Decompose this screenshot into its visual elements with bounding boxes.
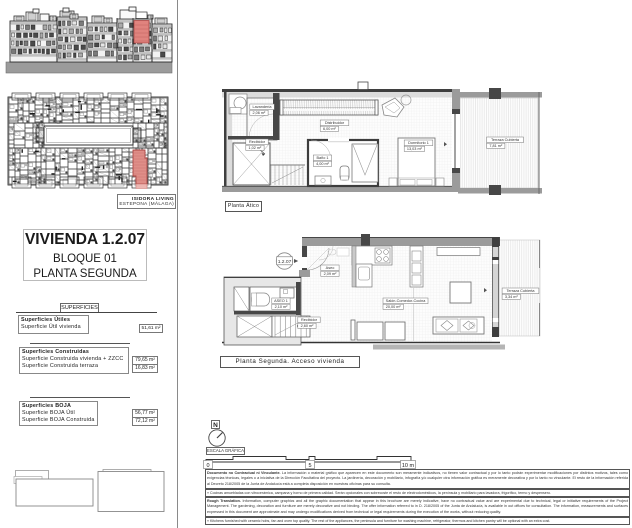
svg-text:Salón-Comedor-Cocina: Salón-Comedor-Cocina bbox=[386, 299, 427, 303]
svg-text:Baño 1: Baño 1 bbox=[316, 156, 328, 160]
svg-text:2,60 m²: 2,60 m² bbox=[301, 324, 315, 328]
svg-text:2,09 m²: 2,09 m² bbox=[324, 272, 338, 276]
svg-text:Terraza Cubierta: Terraza Cubierta bbox=[506, 289, 535, 293]
svg-text:Dormitorio 1: Dormitorio 1 bbox=[408, 141, 429, 145]
svg-text:ASEO 1: ASEO 1 bbox=[274, 299, 288, 303]
svg-text:Terraza Cubierta: Terraza Cubierta bbox=[491, 138, 520, 142]
svg-text:Distribuidor: Distribuidor bbox=[325, 121, 345, 125]
svg-text:Lavandería: Lavandería bbox=[253, 105, 273, 109]
svg-text:4,00 m²: 4,00 m² bbox=[316, 162, 330, 166]
svg-text:1.2.07: 1.2.07 bbox=[278, 259, 292, 265]
svg-text:Recibidor: Recibidor bbox=[301, 318, 318, 322]
svg-text:1,02 m²: 1,02 m² bbox=[248, 146, 262, 150]
svg-text:7,81 m²: 7,81 m² bbox=[489, 144, 503, 148]
svg-text:10 m: 10 m bbox=[402, 463, 415, 469]
svg-text:6,00 m²: 6,00 m² bbox=[323, 127, 337, 131]
svg-text:N: N bbox=[213, 422, 218, 429]
svg-text:20,00 m²: 20,00 m² bbox=[386, 305, 402, 309]
svg-text:5: 5 bbox=[308, 463, 311, 469]
svg-text:Aseo: Aseo bbox=[326, 266, 335, 270]
svg-text:2,06 m²: 2,06 m² bbox=[252, 111, 266, 115]
svg-text:13,03 m²: 13,03 m² bbox=[407, 147, 423, 151]
svg-text:3,34 m²: 3,34 m² bbox=[505, 295, 519, 299]
svg-text:0: 0 bbox=[206, 463, 209, 469]
svg-text:2,10 m²: 2,10 m² bbox=[275, 305, 289, 309]
svg-text:Recibidor: Recibidor bbox=[249, 140, 266, 144]
